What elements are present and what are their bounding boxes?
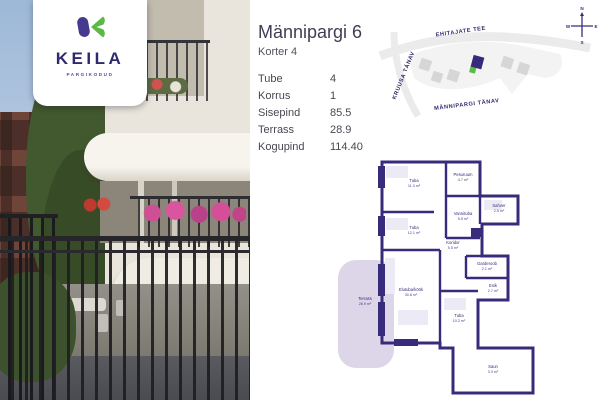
room-label: Elutuba/köök xyxy=(399,287,424,292)
room-label: Pesuruum xyxy=(453,172,473,177)
listing-title: Männipargi 6 xyxy=(258,22,362,43)
fence-rail xyxy=(0,250,250,253)
room-area: 2.1 m² xyxy=(482,267,493,271)
detail-label: Kogupind xyxy=(258,141,330,153)
detail-row: Sisepind 85.5 xyxy=(258,104,363,121)
room-area: 30.8 m² xyxy=(405,293,418,297)
svg-text:S: S xyxy=(580,40,583,45)
curved-balcony-slab xyxy=(84,133,250,181)
listing-subtitle: Korter 4 xyxy=(258,46,297,58)
detail-row: Terrass 28.9 xyxy=(258,121,363,138)
room-label: Koridor xyxy=(446,240,460,245)
site-map: EHITAJATE TEE KRUUSA TÄNAV MÄNNIPARGI TÄ… xyxy=(378,4,600,120)
detail-row: Tube 4 xyxy=(258,70,363,87)
room-area: 5.5 m² xyxy=(458,217,469,221)
detail-value: 85.5 xyxy=(330,107,351,119)
detail-value: 1 xyxy=(330,90,336,102)
svg-text:E: E xyxy=(594,24,597,29)
metal-fence xyxy=(0,236,250,400)
room-area: 11.3 m² xyxy=(408,184,421,188)
detail-label: Korrus xyxy=(258,90,330,102)
room-area: 3.3 m² xyxy=(488,370,499,374)
street-label-bottom: MÄNNIPARGI TÄNAV xyxy=(434,97,500,112)
room-area: 2.5 m² xyxy=(494,209,505,213)
detail-label: Tube xyxy=(258,73,330,85)
room-label: Vannituba xyxy=(454,211,473,216)
room-label: Garderoob xyxy=(477,261,498,266)
listing-page: KEILA PARGIKODUD Männipargi 6 Korter 4 T… xyxy=(0,0,600,400)
brand-tagline: PARGIKODUD xyxy=(33,72,147,77)
compass-icon: N E S W xyxy=(566,6,598,45)
room-label: Tuba xyxy=(409,225,419,230)
room-area: 12.1 m² xyxy=(408,231,421,235)
room-area: 2.7 m² xyxy=(488,289,499,293)
detail-label: Terrass xyxy=(258,124,330,136)
brand-name: KEILA xyxy=(33,49,147,69)
detail-label: Sisepind xyxy=(258,107,330,119)
detail-value: 4 xyxy=(330,73,336,85)
svg-text:N: N xyxy=(580,6,584,11)
detail-row: Korrus 1 xyxy=(258,87,363,104)
detail-value: 28.9 xyxy=(330,124,351,136)
room-label: Esik xyxy=(489,283,498,288)
room-area: 5.5 m² xyxy=(448,246,459,250)
room-area: 28.9 m² xyxy=(359,302,372,306)
flower-box xyxy=(142,200,246,226)
room-area: 4.7 m² xyxy=(458,178,469,182)
logo-card: KEILA PARGIKODUD xyxy=(33,0,147,106)
keila-logo-icon xyxy=(70,14,110,40)
room-label: Tuba xyxy=(454,313,464,318)
flower-box xyxy=(80,196,114,214)
room-label: Sahver xyxy=(492,203,506,208)
room-area: 10.2 m² xyxy=(453,319,466,323)
room-label: Saun xyxy=(488,364,498,369)
room-label: Terrass xyxy=(358,296,372,301)
floorplan: Tuba 11.3 m² Pesuruum 4.7 m² Sahver 2.5 … xyxy=(338,138,600,400)
site-area xyxy=(408,42,562,94)
svg-text:W: W xyxy=(566,24,571,29)
room-label: Tuba xyxy=(409,178,419,183)
